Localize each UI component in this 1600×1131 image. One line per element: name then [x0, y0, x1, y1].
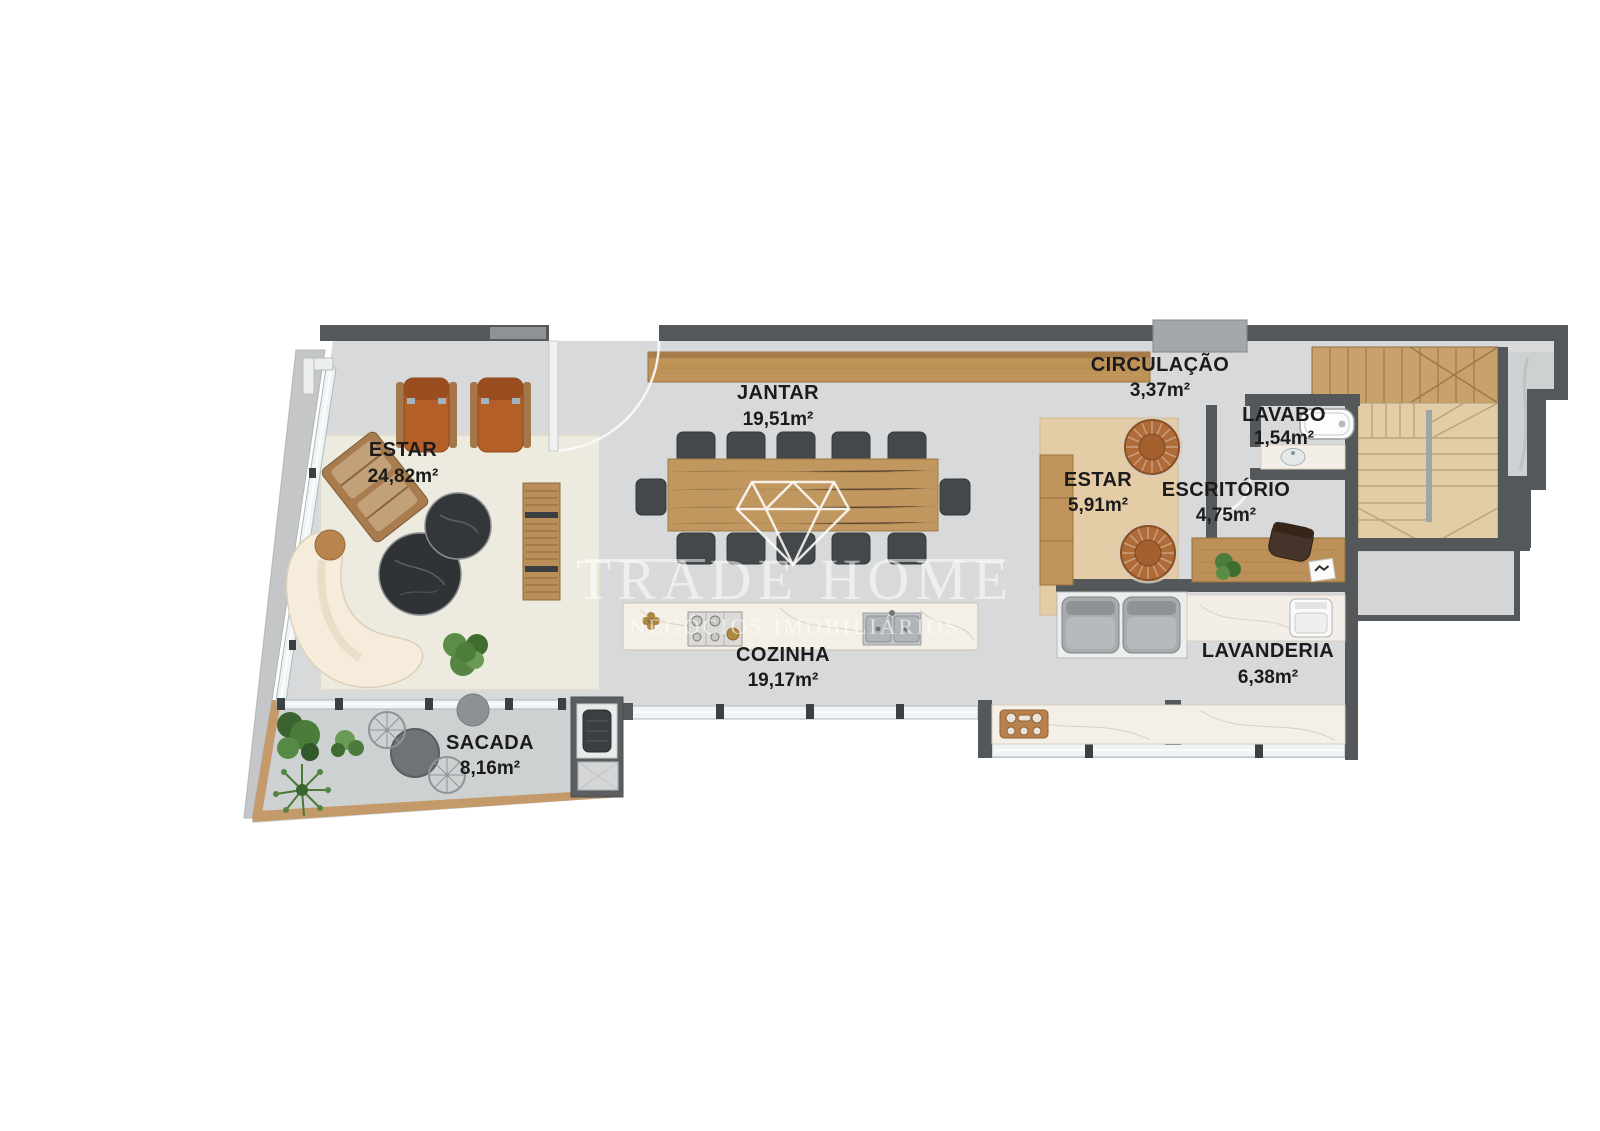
pouf [457, 694, 489, 726]
svg-text:COZINHA: COZINHA [736, 644, 830, 666]
svg-text:4,75m²: 4,75m² [1196, 505, 1256, 526]
laundry-sink [1290, 599, 1332, 637]
lounge-chair [470, 378, 531, 452]
svg-text:8,16m²: 8,16m² [460, 758, 520, 779]
coffee-table [425, 493, 491, 559]
svg-text:19,17m²: 19,17m² [748, 670, 819, 691]
balcony-chair [369, 712, 405, 748]
svg-text:1,54m²: 1,54m² [1254, 428, 1314, 449]
watermark-tagline: NEGÓCIOS IMOBILIÁRIOS [629, 614, 960, 639]
svg-text:LAVABO: LAVABO [1242, 404, 1326, 426]
svg-text:ESTAR: ESTAR [1064, 469, 1132, 491]
washing-machine [1123, 597, 1180, 653]
top-window-block [1153, 320, 1247, 352]
stair-landing [1357, 551, 1517, 617]
svg-text:JANTAR: JANTAR [737, 382, 819, 404]
svg-text:LAVANDERIA: LAVANDERIA [1202, 640, 1334, 662]
svg-text:3,37m²: 3,37m² [1130, 380, 1190, 401]
svg-text:5,91m²: 5,91m² [1068, 495, 1128, 516]
svg-text:6,38m²: 6,38m² [1238, 667, 1298, 688]
balcony-table [391, 729, 439, 777]
svg-text:CIRCULAÇÃO: CIRCULAÇÃO [1091, 353, 1229, 376]
svg-text:19,51m²: 19,51m² [743, 409, 814, 430]
stairs [1358, 403, 1498, 548]
washing-machine [1062, 597, 1119, 653]
dining-table [668, 459, 938, 531]
watermark-brand: TRADE HOME [576, 547, 1015, 612]
svg-text:ESCRITÓRIO: ESCRITÓRIO [1162, 477, 1290, 501]
svg-text:SACADA: SACADA [446, 732, 534, 754]
wall-vent [490, 327, 546, 339]
rattan-chair [1123, 418, 1181, 476]
floor-plan: TRADE HOME NEGÓCIOS IMOBILIÁRIOS ESTAR 2… [0, 0, 1600, 1131]
rattan-chair [1119, 524, 1177, 582]
cooktop [1000, 710, 1048, 738]
paper [1309, 558, 1336, 581]
svg-text:ESTAR: ESTAR [369, 439, 437, 461]
entry-door-leaf [549, 341, 558, 451]
grill-station [571, 697, 623, 797]
floor-plan-canvas: TRADE HOME NEGÓCIOS IMOBILIÁRIOS ESTAR 2… [0, 0, 1600, 1131]
svg-text:24,82m²: 24,82m² [368, 466, 439, 487]
sideboard [648, 352, 1150, 382]
lavabo-sink [1281, 449, 1305, 466]
slatted-bench [523, 483, 560, 600]
side-table [315, 530, 345, 560]
